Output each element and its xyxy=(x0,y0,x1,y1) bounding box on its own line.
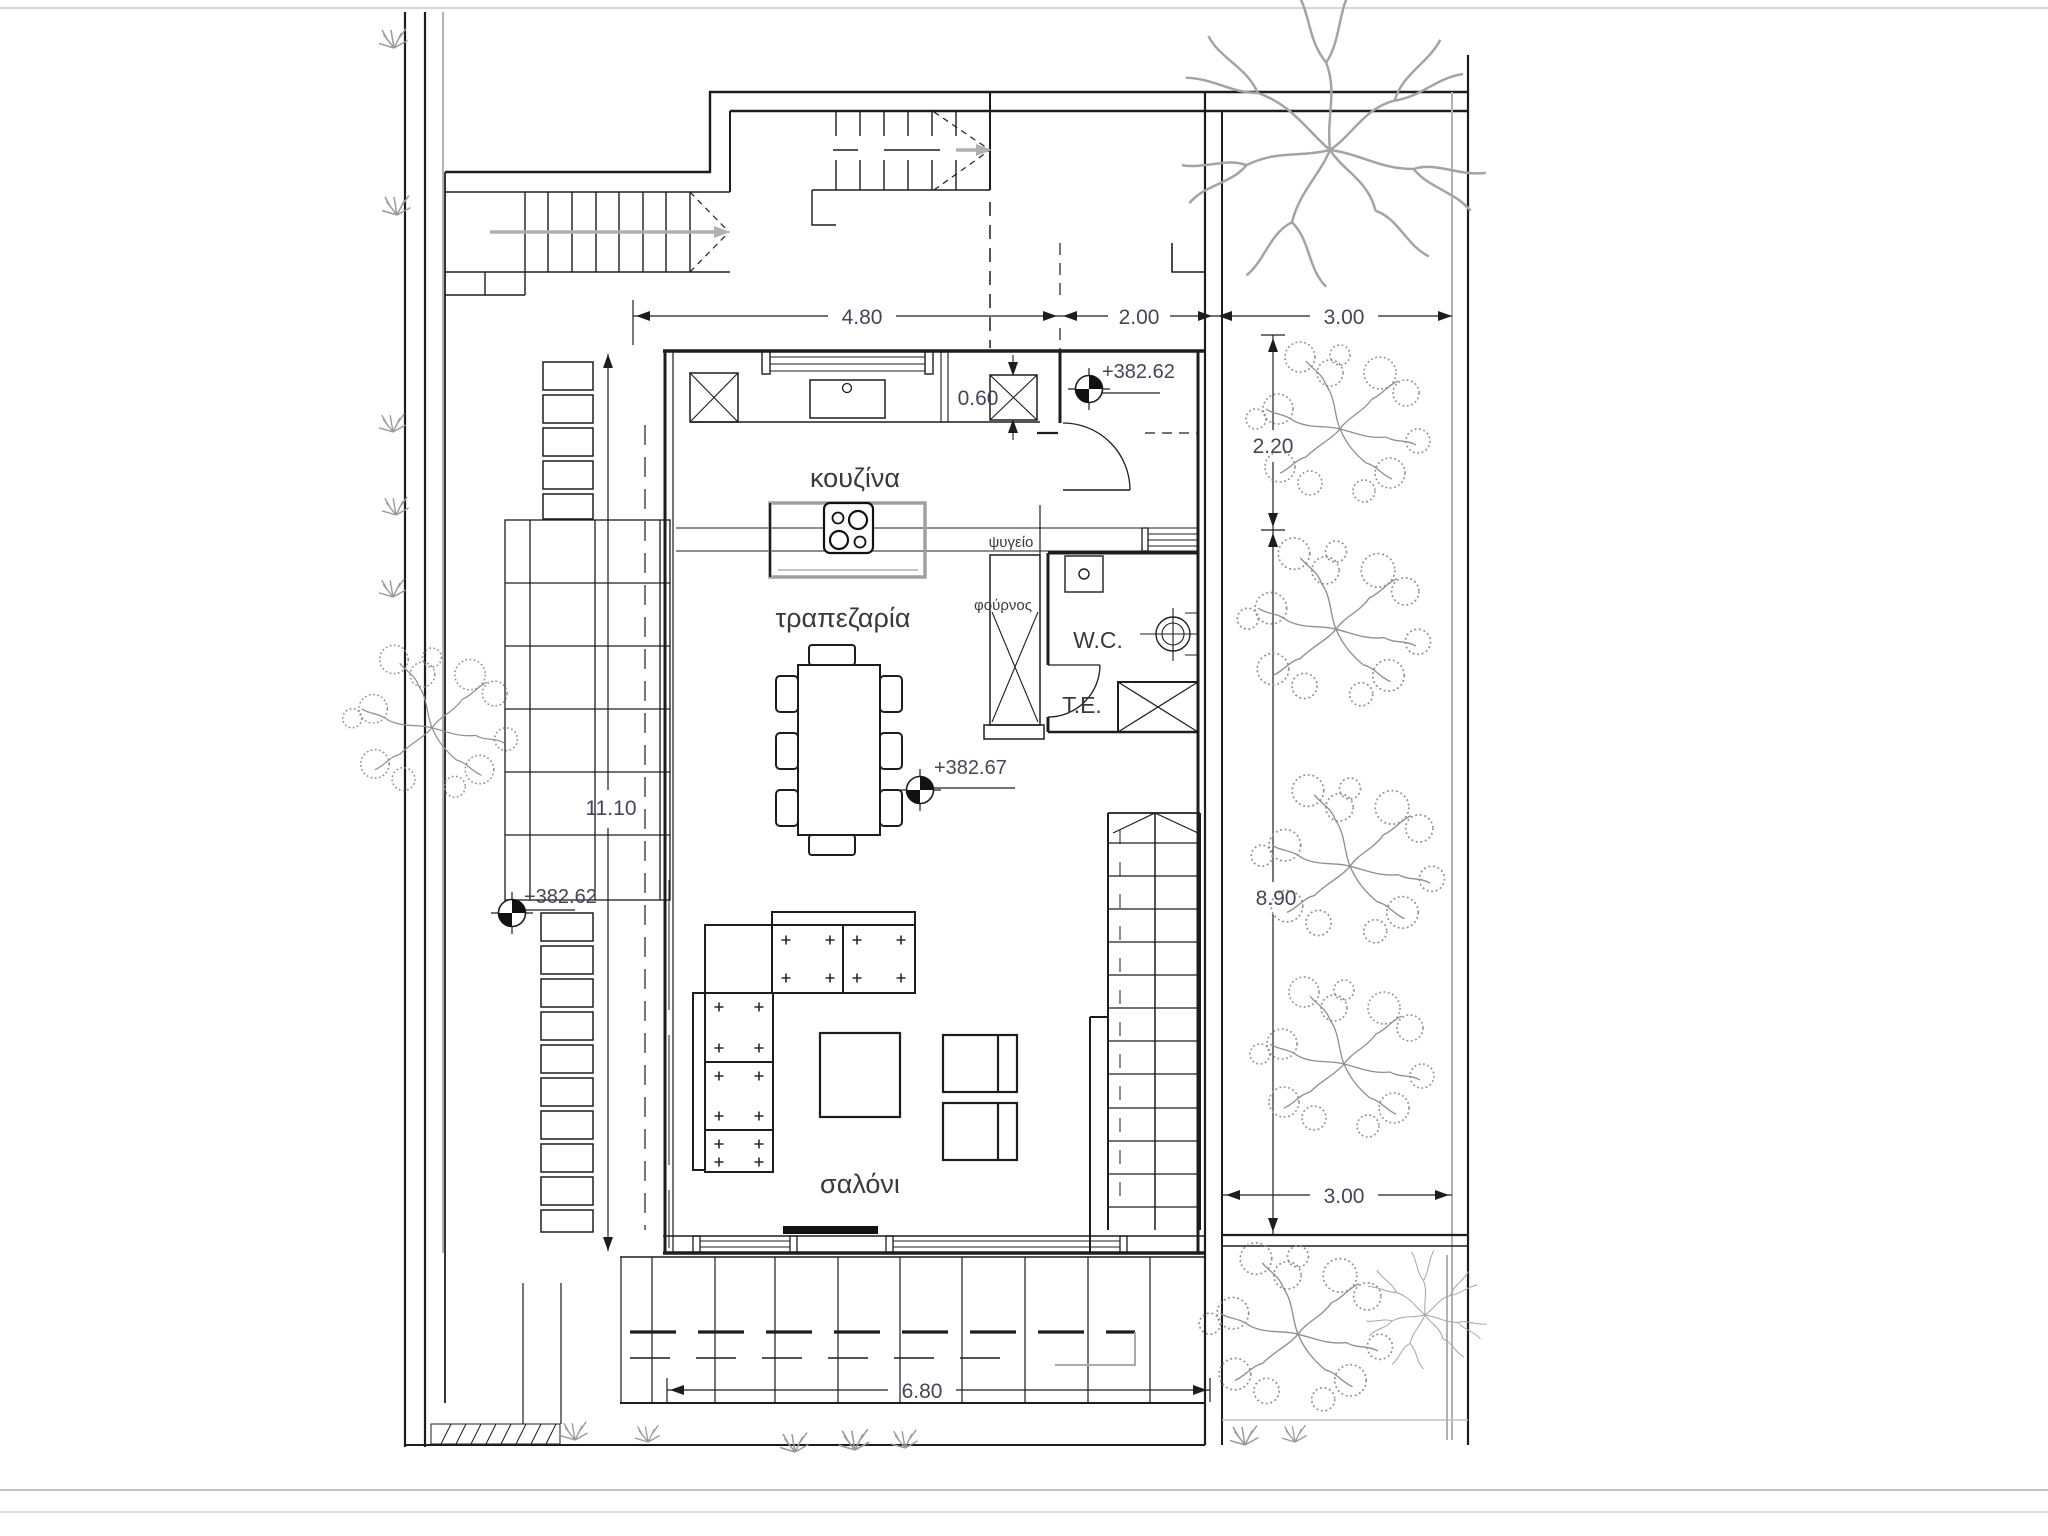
tree-leafy-icon xyxy=(1251,775,1444,943)
faucet-icon xyxy=(843,384,852,393)
kitchen-north-window xyxy=(762,351,933,374)
overhead-beam-lines xyxy=(676,528,1198,551)
dimension-right xyxy=(1261,335,1285,1235)
floor-plan-sheet: κουζίνα τραπεζαρία σαλόνι W.C. T.E. ψυγε… xyxy=(0,0,2048,1536)
south-wall-windows xyxy=(693,1226,1127,1253)
wc-window xyxy=(1142,528,1198,551)
cooktop-icon xyxy=(824,503,873,553)
dim-terrace-width: 6.80 xyxy=(902,1380,943,1403)
level-entry: +382.62 xyxy=(1102,361,1175,383)
armchairs xyxy=(943,1035,1017,1160)
label-fridge: ψυγείο xyxy=(989,534,1034,551)
dim-left-height: 11.10 xyxy=(586,797,637,820)
dim-right-upper: 2.20 xyxy=(1253,435,1294,458)
tree-leafy-icon xyxy=(343,645,518,797)
dim-top-middle: 2.00 xyxy=(1119,306,1160,329)
wc-sink-icon xyxy=(1065,556,1103,592)
tree-leafy-icon xyxy=(1250,977,1434,1137)
dining-table xyxy=(776,645,902,855)
dimension-top xyxy=(633,243,1452,360)
garden-trees xyxy=(343,0,1487,1411)
tree-bare-icon xyxy=(1182,0,1486,287)
tree-leafy-icon xyxy=(1199,1243,1392,1411)
sliding-door-leaf xyxy=(783,1226,878,1234)
room-label-wc: W.C. xyxy=(1073,627,1123,653)
entry-door xyxy=(1037,423,1198,490)
south-terrace-grid xyxy=(523,1257,1205,1424)
kitchen-island xyxy=(770,503,925,577)
level-terrace: +382.62 xyxy=(524,886,597,908)
dim-top-right: 3.00 xyxy=(1324,306,1365,329)
tree-leafy-icon xyxy=(1237,538,1430,706)
te-panel xyxy=(1118,682,1198,732)
dim-top-left: 4.80 xyxy=(842,306,883,329)
room-label-living: σαλόνι xyxy=(820,1169,900,1199)
entry-stairs-upper xyxy=(812,112,992,225)
room-label-te: T.E. xyxy=(1062,692,1102,718)
interior-staircase xyxy=(1090,813,1200,1253)
terrace-hatch-block xyxy=(431,1424,560,1444)
sheet-edge-lines xyxy=(0,8,2048,1512)
toilet-icon xyxy=(1140,608,1198,661)
dim-counter-niche: 0.60 xyxy=(958,387,999,410)
room-label-kitchen: κουζίνα xyxy=(810,463,900,493)
coffee-table xyxy=(820,1033,900,1117)
dim-bottom-right: 3.00 xyxy=(1324,1185,1365,1208)
floor-plan-drawing: κουζίνα τραπεζαρία σαλόνι W.C. T.E. ψυγε… xyxy=(0,0,2048,1536)
dim-right-lower: 8.90 xyxy=(1256,887,1297,910)
sink-icon xyxy=(810,380,885,418)
level-interior: +382.67 xyxy=(934,757,1007,779)
room-label-dining: τραπεζαρία xyxy=(776,603,911,633)
entry-stairs-left xyxy=(445,192,730,295)
label-oven: φούρνος xyxy=(974,597,1032,614)
